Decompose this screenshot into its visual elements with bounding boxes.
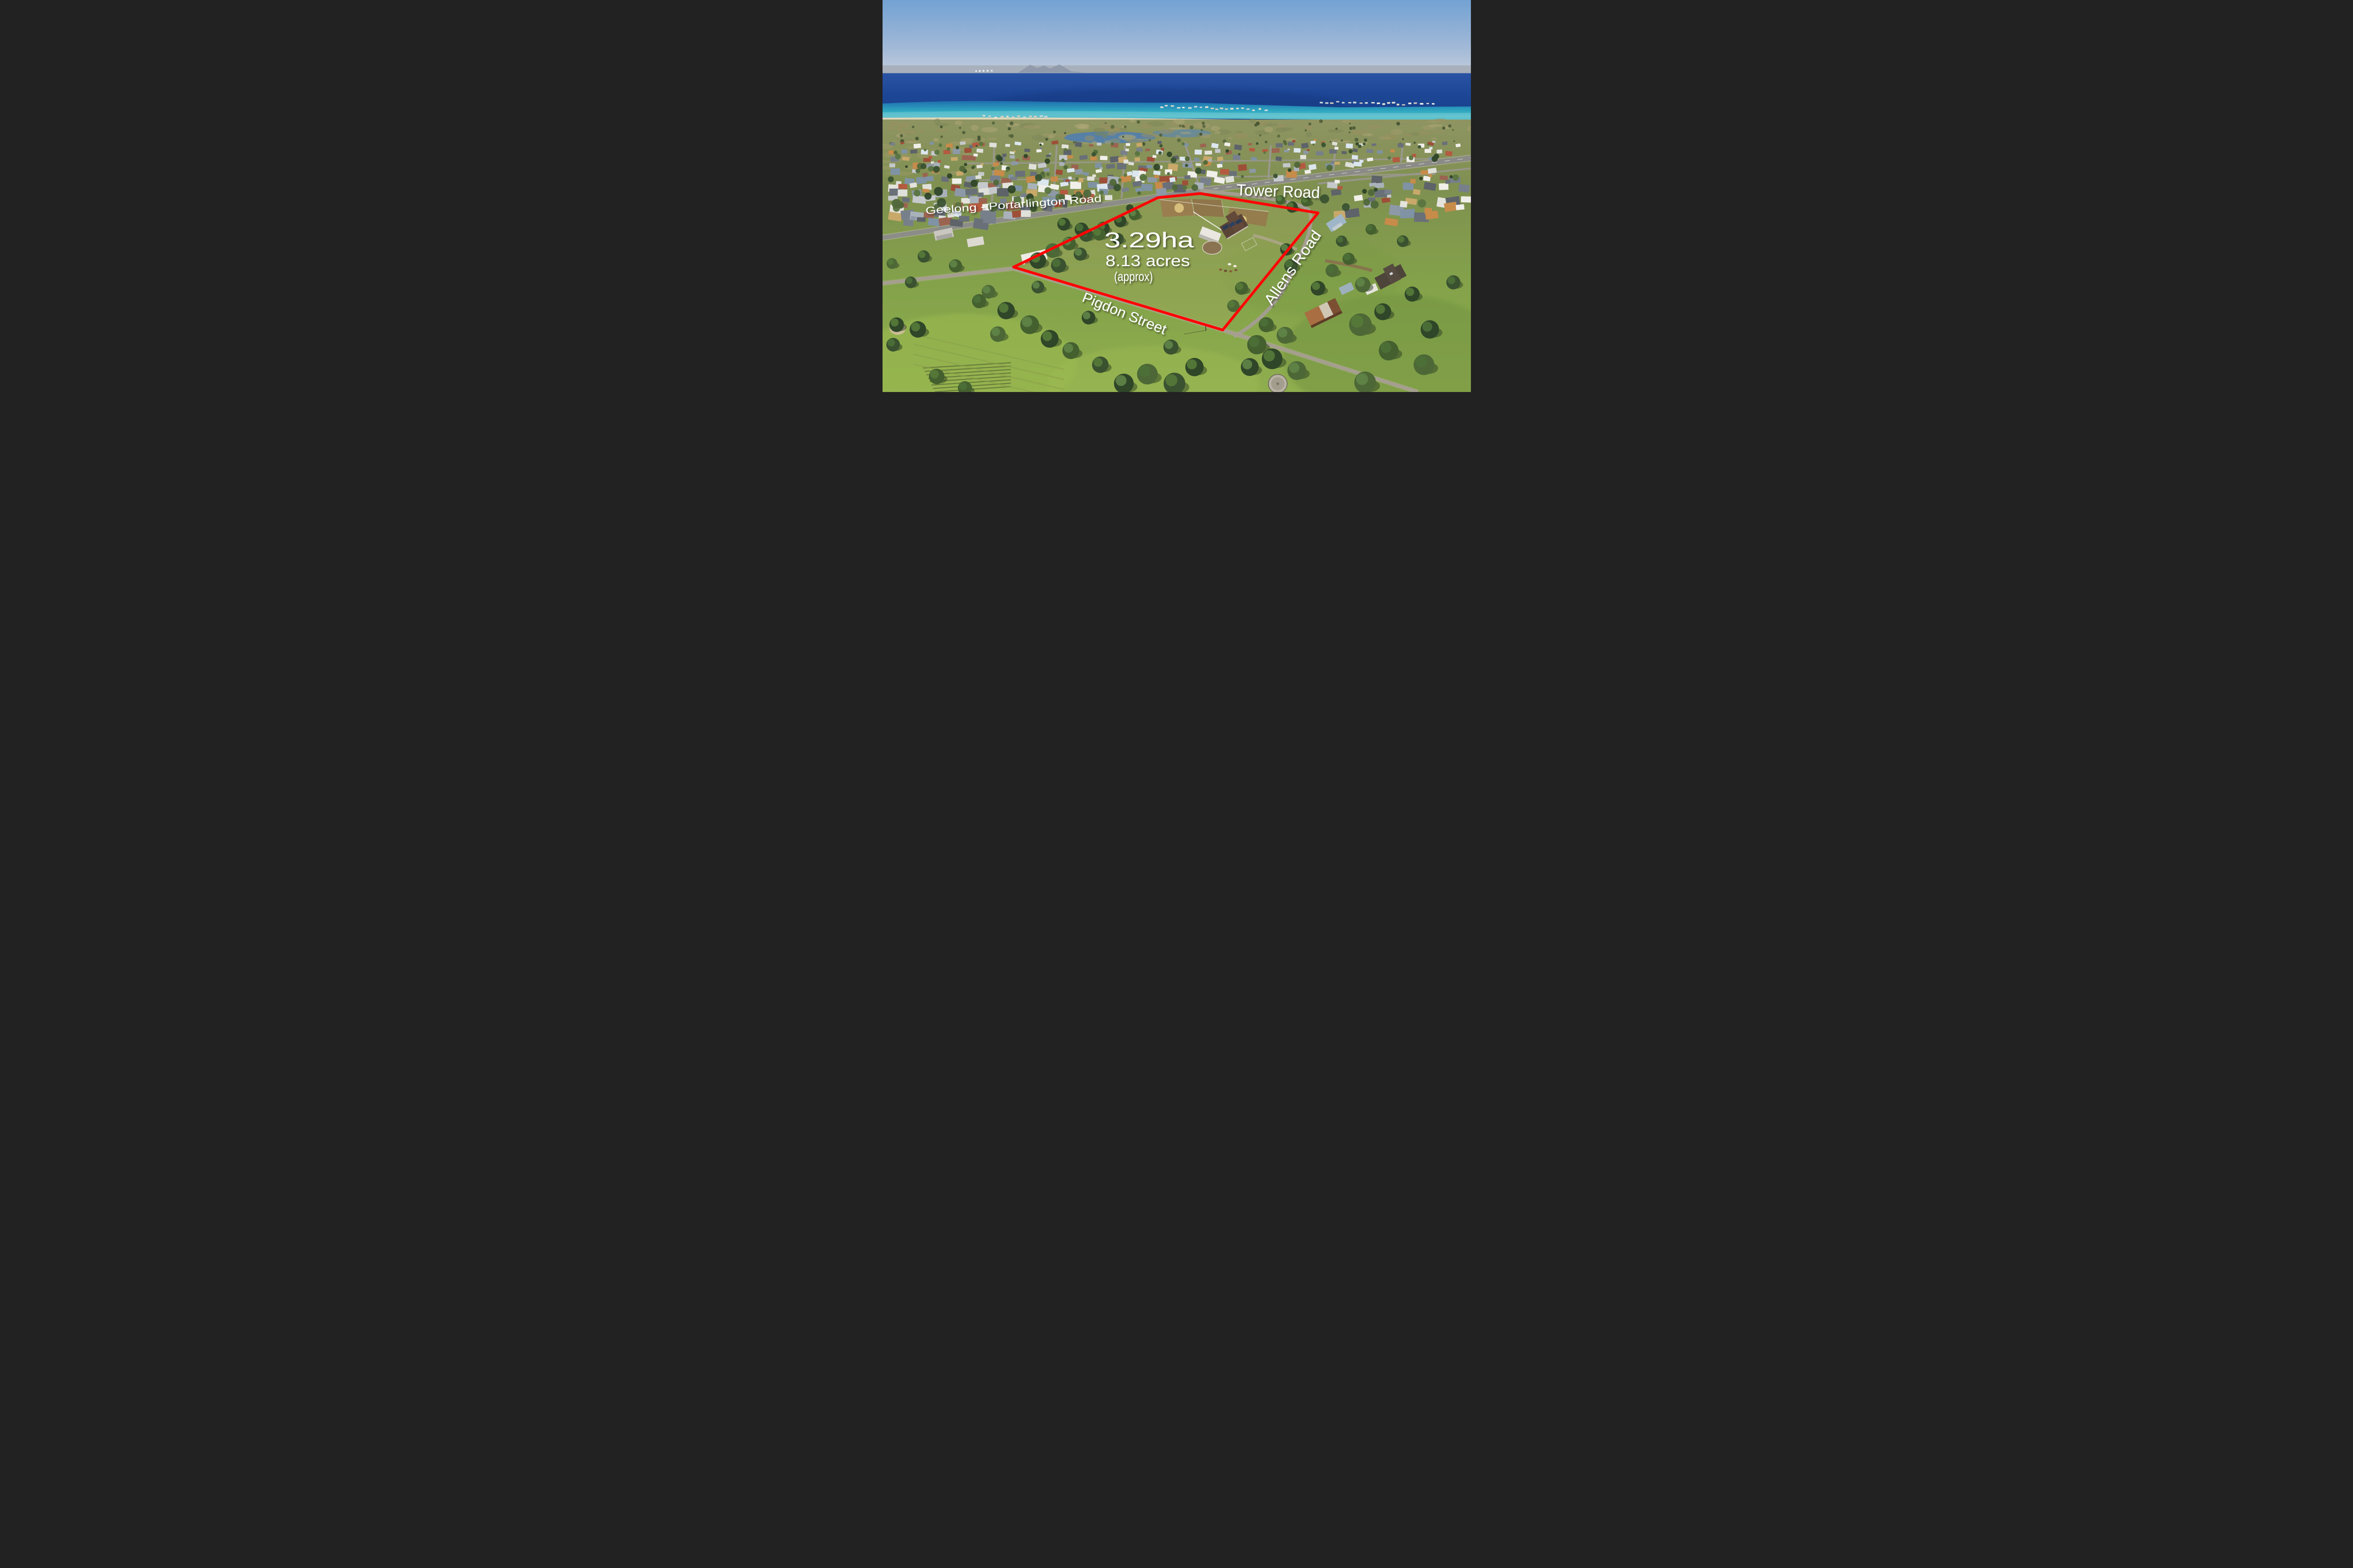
aerial-listing-photo: Geelong - Portarlington Road Tower Road …: [883, 0, 1471, 392]
road-label-tower: Tower Road: [1236, 181, 1320, 202]
area-approx-label: (approx): [1114, 269, 1153, 284]
area-hectares-label: 3.29ha: [1104, 228, 1194, 252]
round-yard: [1202, 241, 1221, 254]
water-tank: [1268, 375, 1287, 392]
area-acres-label: 8.13 acres: [1105, 252, 1190, 270]
hay-ring: [1174, 203, 1184, 213]
power-pole: [1205, 326, 1206, 331]
aerial-photo-canvas: Geelong - Portarlington Road Tower Road …: [883, 0, 1471, 392]
